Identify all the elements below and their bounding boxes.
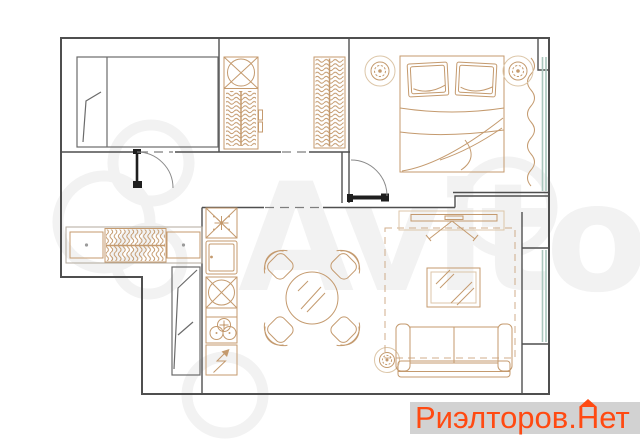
brand-prefix: Риэлторов xyxy=(415,402,568,434)
refrigerator xyxy=(206,241,237,274)
sink xyxy=(206,277,237,308)
door-swing-arc xyxy=(137,152,173,188)
door-hinge xyxy=(381,194,389,202)
floor-plan-svg: Avito xyxy=(0,0,640,445)
door-hinge xyxy=(133,181,142,188)
knob xyxy=(85,243,88,246)
sofa xyxy=(396,324,512,377)
counter xyxy=(206,308,237,317)
kitchen xyxy=(206,208,237,375)
brand-badge: Риэлторов.Нет xyxy=(410,402,640,434)
handle xyxy=(259,110,263,120)
wardrobe-left xyxy=(224,57,263,149)
kitchen-hood xyxy=(206,208,237,238)
single-bed xyxy=(77,57,218,147)
blanket-edge xyxy=(400,130,504,135)
knob xyxy=(182,243,185,246)
ceiling-light xyxy=(503,56,533,86)
wardrobe-right xyxy=(314,57,345,148)
brand-dot: . xyxy=(568,402,577,434)
floor-plan-image: Avito xyxy=(0,0,640,445)
shaft xyxy=(538,38,549,70)
ceiling-light xyxy=(365,56,395,86)
house-roof-icon xyxy=(579,399,597,407)
pillow xyxy=(407,62,449,97)
watermark-text: Avito xyxy=(238,152,640,326)
watermark-ring xyxy=(113,125,189,201)
door-hinge xyxy=(347,194,353,202)
handle xyxy=(259,122,263,132)
brand-suffix: ет xyxy=(599,402,629,434)
entry-door xyxy=(133,149,173,188)
brand-house-letter: Н xyxy=(577,402,599,434)
stove xyxy=(206,317,237,343)
pillow xyxy=(455,62,497,97)
asterisk-icon xyxy=(215,216,229,230)
blanket-edge xyxy=(400,108,504,112)
